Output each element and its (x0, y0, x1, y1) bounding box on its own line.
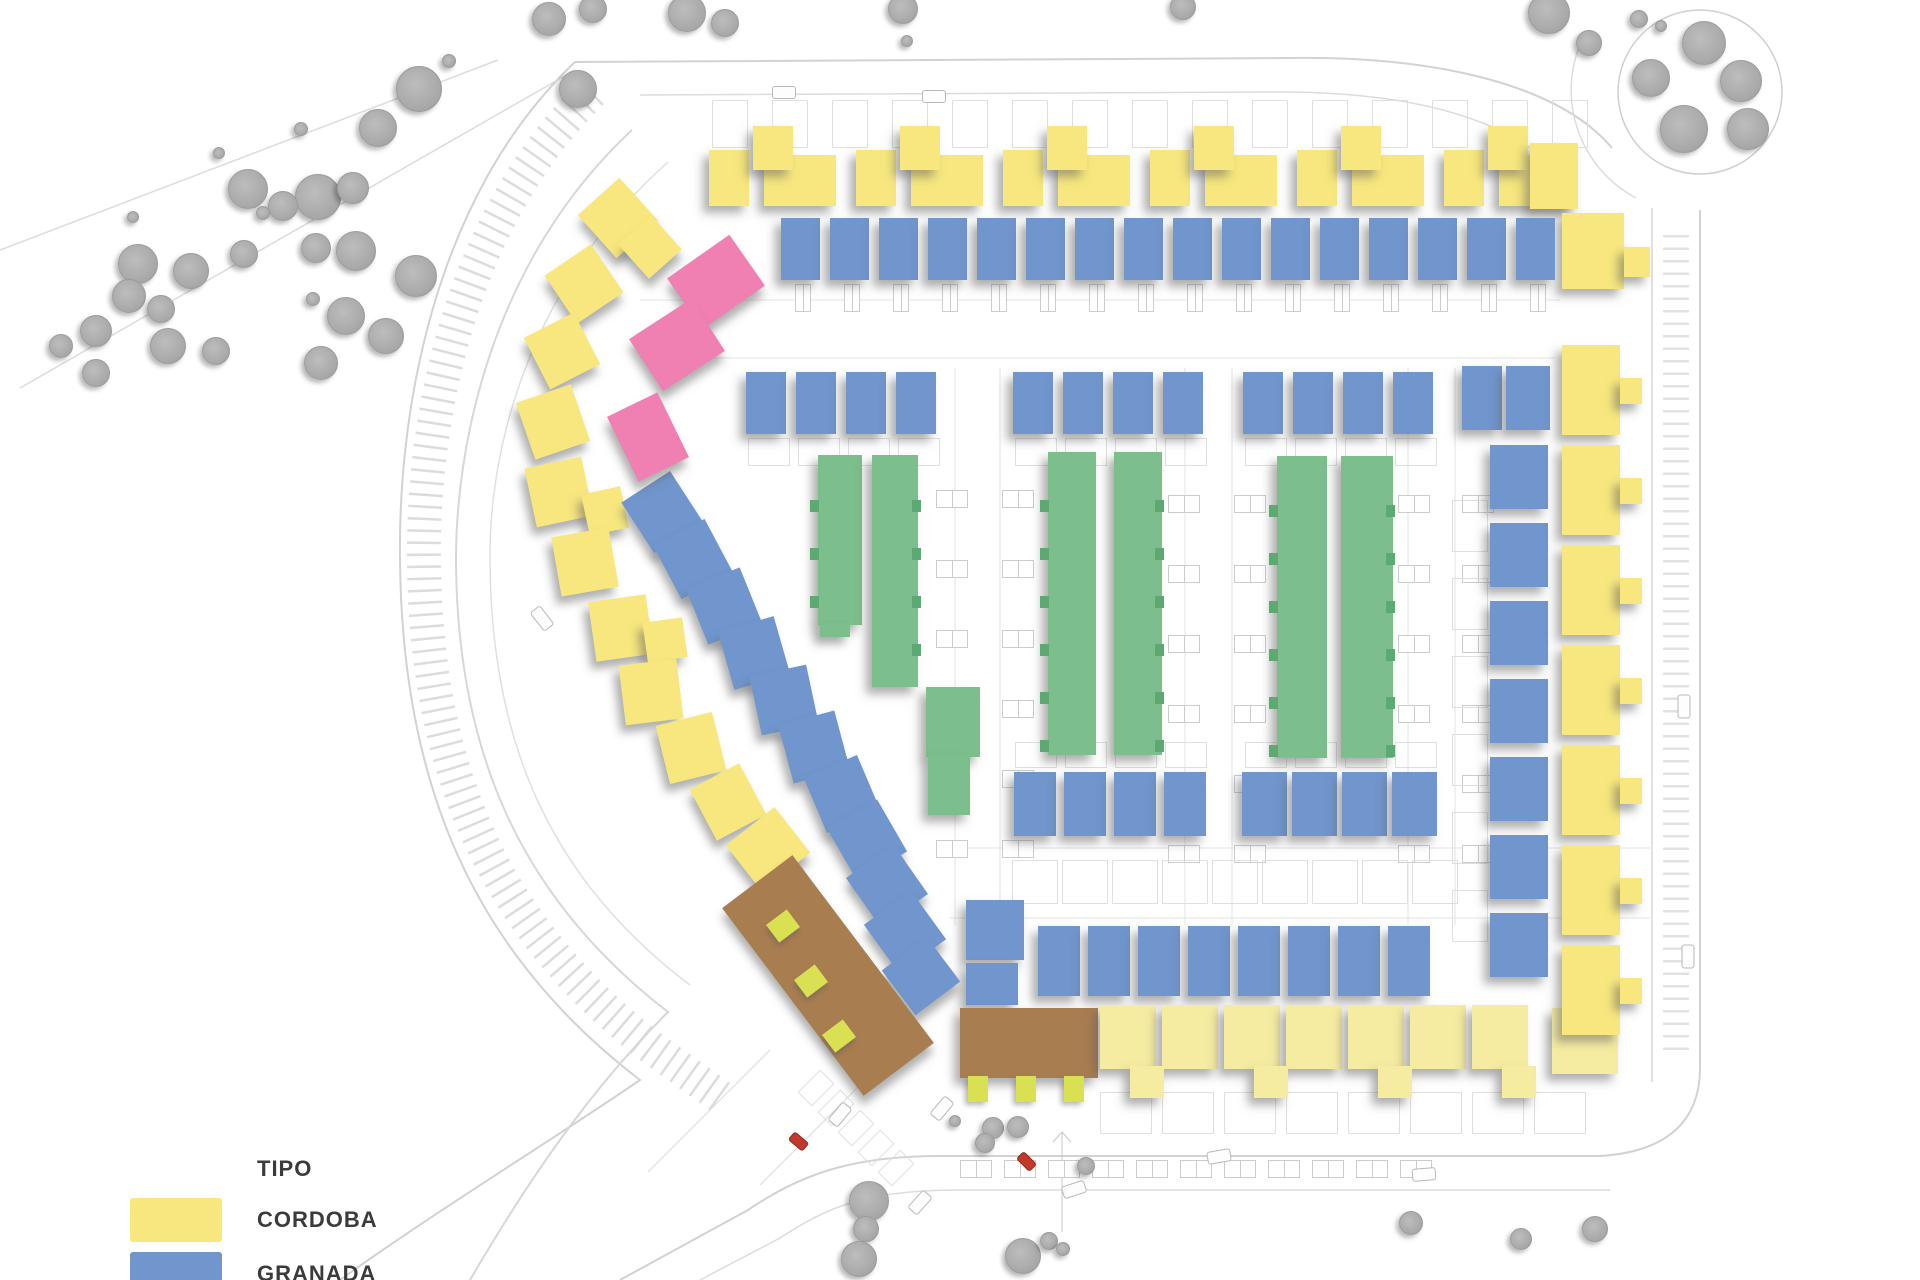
tree (301, 233, 331, 263)
car-outline (1682, 945, 1695, 969)
tree (1630, 10, 1648, 28)
building-granada (1124, 218, 1163, 280)
building-granada (966, 963, 1018, 1005)
building-granada (1114, 772, 1156, 836)
plot-outline (1472, 1092, 1524, 1134)
green-notch (1386, 649, 1395, 661)
tree (1682, 21, 1726, 65)
tree (268, 191, 298, 221)
building-granada (1490, 523, 1548, 587)
plot-outline (1262, 860, 1308, 904)
parking-stall (1234, 565, 1266, 583)
tree (82, 359, 110, 387)
parking-stall (1089, 284, 1105, 312)
building-granada (1243, 372, 1283, 434)
building-granada (1088, 926, 1130, 996)
plot-outline (1452, 734, 1488, 786)
tree (1655, 20, 1667, 32)
road-line (700, 1190, 1610, 1280)
building-granada (1188, 926, 1230, 996)
building-granada (1271, 218, 1310, 280)
building-cordoba (1562, 213, 1624, 289)
building-granada (1490, 835, 1548, 899)
building-cordoba (642, 617, 687, 662)
tree (112, 279, 146, 313)
building-granada (1064, 772, 1106, 836)
tree (396, 66, 442, 112)
plot-outline (1252, 100, 1288, 148)
parking-stall (1334, 284, 1350, 312)
building-cordoba (1620, 478, 1642, 504)
building-granada (1418, 218, 1457, 280)
building-granada (966, 900, 1024, 960)
building-granada (1342, 772, 1387, 836)
building-granada (1173, 218, 1212, 280)
building-granada (846, 372, 886, 434)
tree (1720, 60, 1762, 102)
legend-swatch-cordoba (130, 1198, 222, 1242)
plot-outline (1432, 100, 1468, 148)
green-notch (810, 500, 819, 512)
building-granada (1462, 366, 1502, 430)
building-cordoba (1254, 1066, 1288, 1098)
building-entry-tab (1064, 1076, 1084, 1102)
building-entry-tab (968, 1076, 988, 1102)
building-cordoba (1562, 645, 1620, 735)
green-notch (912, 644, 921, 656)
green-notch (1040, 596, 1049, 608)
legend-title: TIPO (257, 1156, 378, 1182)
building-granada (1075, 218, 1114, 280)
building-granada (1293, 372, 1333, 434)
legend-item-cordoba: CORDOBA (130, 1198, 378, 1242)
building-cordoba (551, 527, 619, 596)
building-granada (928, 218, 967, 280)
parking-stall (1168, 565, 1200, 583)
building-granada (1392, 772, 1437, 836)
plot-outline (1132, 100, 1168, 148)
parking-stall (1285, 284, 1301, 312)
tree (173, 253, 209, 289)
building-granada (1490, 601, 1548, 665)
building-granada (1369, 218, 1408, 280)
building-granada (1026, 218, 1065, 280)
tree (230, 240, 258, 268)
parking-stall (1138, 284, 1154, 312)
parking-stall (1234, 635, 1266, 653)
plot-outline (1162, 860, 1208, 904)
building-granada (1516, 218, 1555, 280)
plot-outline (1452, 500, 1488, 552)
building-cordoba (1620, 978, 1642, 1004)
building-granada (1320, 218, 1359, 280)
building-verde (1277, 456, 1327, 758)
tree (849, 1181, 889, 1221)
tree (294, 122, 308, 136)
legend-swatch-granada (130, 1252, 222, 1280)
plot-outline (1165, 438, 1207, 466)
building-granada (1338, 926, 1380, 996)
building-granada (1164, 772, 1206, 836)
parking-stall (1002, 700, 1034, 718)
green-notch (1386, 697, 1395, 709)
tree (711, 9, 739, 37)
building-granada (781, 218, 820, 280)
building-cordoba (1297, 150, 1337, 206)
building-cordoba (1224, 1005, 1280, 1069)
plot-outline (1395, 742, 1437, 768)
building-granada (830, 218, 869, 280)
green-notch (1155, 548, 1164, 560)
tree (975, 1133, 995, 1153)
tree (359, 109, 397, 147)
green-notch (1386, 505, 1395, 517)
plot-outline (1162, 1092, 1214, 1134)
plot-outline (1212, 860, 1258, 904)
parking-stall (1002, 560, 1034, 578)
building-granada (1393, 372, 1433, 434)
building-cordoba (1620, 778, 1642, 804)
parking-stall (1398, 565, 1430, 583)
building-granada (796, 372, 836, 434)
tree (49, 334, 73, 358)
tree (532, 2, 566, 36)
plot-outline (1100, 1092, 1152, 1134)
green-notch (1386, 601, 1395, 613)
road-line (340, 62, 640, 1280)
building-verde (820, 623, 850, 637)
tree (949, 1115, 961, 1127)
green-notch (912, 548, 921, 560)
legend: TIPO CORDOBA GRANADA (130, 1156, 378, 1280)
tree (304, 346, 338, 380)
building-granada (1222, 218, 1261, 280)
plot-outline (832, 100, 868, 148)
building-cordoba (856, 150, 896, 206)
parking-stall (1234, 705, 1266, 723)
parking-stall (936, 630, 968, 648)
green-notch (912, 596, 921, 608)
plot-outline (1165, 742, 1207, 768)
building-granada (1038, 926, 1080, 996)
green-notch (810, 596, 819, 608)
green-notch (1040, 548, 1049, 560)
building-granada (879, 218, 918, 280)
tree (336, 231, 376, 271)
tree (1399, 1211, 1423, 1235)
parking-stall (1312, 1160, 1344, 1178)
green-notch (1155, 740, 1164, 752)
building-granada (1242, 772, 1287, 836)
tree (368, 318, 404, 354)
parking-stall (1398, 705, 1430, 723)
building-cordoba (900, 126, 940, 170)
building-cordoba (1348, 1005, 1404, 1069)
tree (1576, 30, 1602, 56)
green-notch (1269, 601, 1278, 613)
building-cordoba (1444, 150, 1484, 206)
legend-item-granada: GRANADA (130, 1252, 378, 1280)
legend-label-granada: GRANADA (257, 1261, 376, 1280)
tree (559, 70, 597, 108)
building-entry-tab (1016, 1076, 1036, 1102)
building-cordoba (1562, 745, 1620, 835)
building-cordoba (619, 659, 684, 726)
building-cordoba (524, 457, 593, 528)
building-cordoba (1562, 945, 1620, 1035)
tree (256, 206, 270, 220)
building-cordoba (1620, 678, 1642, 704)
building-granada (1467, 218, 1506, 280)
tree (1660, 105, 1708, 153)
plot-outline (1534, 1092, 1586, 1134)
parking-stall (936, 560, 968, 578)
plot-outline (1452, 578, 1488, 630)
tree (228, 169, 268, 209)
parking-stall (942, 284, 958, 312)
green-notch (810, 548, 819, 560)
tree (295, 174, 341, 220)
parking-stall (1398, 495, 1430, 513)
plot-outline (1552, 100, 1588, 148)
tree (1077, 1157, 1095, 1175)
plot-outline (1395, 438, 1437, 466)
building-cordoba (1620, 878, 1642, 904)
plot-outline (1362, 860, 1408, 904)
plot-outline (1112, 860, 1158, 904)
parking-stall (1092, 1160, 1124, 1178)
green-notch (1155, 644, 1164, 656)
building-cordoba (1100, 1005, 1156, 1069)
green-notch (1269, 553, 1278, 565)
parking-stall (1002, 840, 1034, 858)
parking-stall (936, 490, 968, 508)
building-granada (746, 372, 786, 434)
tree (1582, 1216, 1608, 1242)
plot-outline (1410, 1092, 1462, 1134)
tree (213, 147, 225, 159)
building-cordoba (1488, 126, 1528, 170)
tree (1510, 1228, 1532, 1250)
parking-stall (1168, 495, 1200, 513)
parking-stall (936, 840, 968, 858)
building-granada (1163, 372, 1203, 434)
plot-outline (1312, 860, 1358, 904)
building-cordoba (709, 150, 749, 206)
tree (1056, 1242, 1070, 1256)
parking-stall (1168, 635, 1200, 653)
building-granada (1113, 372, 1153, 434)
tree (442, 54, 456, 68)
green-notch (1040, 644, 1049, 656)
parking-stall (991, 284, 1007, 312)
parking-stall (1234, 495, 1266, 513)
parking-stall (1530, 284, 1546, 312)
plot-outline (1224, 1092, 1276, 1134)
building-granada (1288, 926, 1330, 996)
building-cordoba (1562, 845, 1620, 935)
building-cordoba (1502, 1066, 1536, 1098)
tree (1632, 59, 1670, 97)
parking-stall (795, 284, 811, 312)
road-line (424, 92, 722, 1098)
tree (147, 295, 175, 323)
building-granada (1063, 372, 1103, 434)
parking-stall (1383, 284, 1399, 312)
building-cordoba (1130, 1066, 1164, 1098)
green-notch (1269, 505, 1278, 517)
tree (118, 244, 158, 284)
plot-outline (952, 100, 988, 148)
building-granada (1013, 372, 1053, 434)
building-verde (1048, 452, 1096, 755)
parking-stall (1224, 1160, 1256, 1178)
building-cordoba (1341, 126, 1381, 170)
parking-stall (844, 284, 860, 312)
tree (853, 1216, 879, 1242)
building-marron (960, 1008, 1098, 1078)
plot-outline (712, 100, 748, 148)
tree (306, 292, 320, 306)
green-notch (1040, 740, 1049, 752)
parking-stall (960, 1160, 992, 1178)
car-outline (772, 86, 796, 99)
building-granada (1343, 372, 1383, 434)
building-cordoba (1562, 545, 1620, 635)
building-cordoba (1530, 143, 1578, 209)
green-notch (1155, 596, 1164, 608)
building-cordoba (1562, 345, 1620, 435)
building-cordoba (1003, 150, 1043, 206)
parking-stall (1187, 284, 1203, 312)
building-cordoba (1624, 247, 1650, 277)
road-line (1053, 1132, 1071, 1232)
plot-outline (1452, 890, 1488, 942)
car-outline (1678, 695, 1691, 719)
tree (202, 337, 230, 365)
plot-outline (1012, 860, 1058, 904)
building-granada (1014, 772, 1056, 836)
building-cordoba (1162, 1005, 1218, 1069)
building-granada (1138, 926, 1180, 996)
tree (327, 297, 365, 335)
building-verde (928, 755, 970, 815)
tree (80, 315, 112, 347)
parking-stall (1481, 284, 1497, 312)
building-granada (1238, 926, 1280, 996)
plot-outline (1452, 812, 1488, 864)
plot-outline (1452, 656, 1488, 708)
green-notch (1269, 649, 1278, 661)
parking-stall (1268, 1160, 1300, 1178)
parking-stall (1040, 284, 1056, 312)
building-cordoba (1472, 1005, 1528, 1069)
green-notch (1269, 745, 1278, 757)
building-verde (926, 687, 980, 757)
tree (841, 1241, 877, 1277)
building-verde (818, 455, 862, 625)
green-notch (1269, 697, 1278, 709)
tree (1727, 108, 1769, 150)
green-notch (1386, 553, 1395, 565)
parking-stall (1136, 1160, 1168, 1178)
legend-label-cordoba: CORDOBA (257, 1207, 378, 1233)
site-plan-canvas: TIPO CORDOBA GRANADA (0, 0, 1920, 1280)
tree (395, 255, 437, 297)
building-cordoba (1150, 150, 1190, 206)
parking-stall (1356, 1160, 1388, 1178)
parking-stall (1398, 635, 1430, 653)
parking-stall (893, 284, 909, 312)
building-granada (896, 372, 936, 434)
building-granada (977, 218, 1016, 280)
parking-stall (1432, 284, 1448, 312)
building-cordoba (1194, 126, 1234, 170)
parking-stall (1002, 630, 1034, 648)
building-cordoba (1562, 445, 1620, 535)
parking-stall (1236, 284, 1252, 312)
green-notch (1386, 745, 1395, 757)
green-notch (1155, 692, 1164, 704)
green-notch (1040, 692, 1049, 704)
car-outline (922, 90, 946, 103)
tree (127, 211, 139, 223)
building-cordoba (1047, 126, 1087, 170)
building-granada (1490, 913, 1548, 977)
green-notch (912, 500, 921, 512)
building-cordoba (1620, 378, 1642, 404)
building-granada (1490, 445, 1548, 509)
building-granada (1490, 679, 1548, 743)
building-cordoba (1378, 1066, 1412, 1098)
tree (901, 35, 913, 47)
building-cordoba (1620, 578, 1642, 604)
tree (150, 328, 186, 364)
building-cordoba (1410, 1005, 1466, 1069)
building-granada (1388, 926, 1430, 996)
building-granada (1490, 757, 1548, 821)
tree (337, 172, 369, 204)
parking-stall (1048, 1160, 1080, 1178)
parking-stall (1168, 705, 1200, 723)
plot-outline (748, 438, 790, 466)
building-cordoba (1286, 1005, 1342, 1069)
plot-outline (1012, 100, 1048, 148)
tree (1007, 1116, 1029, 1138)
green-notch (1155, 500, 1164, 512)
plot-outline (1062, 860, 1108, 904)
parking-stall (1002, 490, 1034, 508)
building-cordoba (753, 126, 793, 170)
building-granada (1292, 772, 1337, 836)
building-granada (1506, 366, 1550, 430)
tree (1005, 1238, 1041, 1274)
plot-outline (1348, 1092, 1400, 1134)
car-outline (1411, 1167, 1436, 1182)
plot-outline (1286, 1092, 1338, 1134)
green-notch (1040, 500, 1049, 512)
